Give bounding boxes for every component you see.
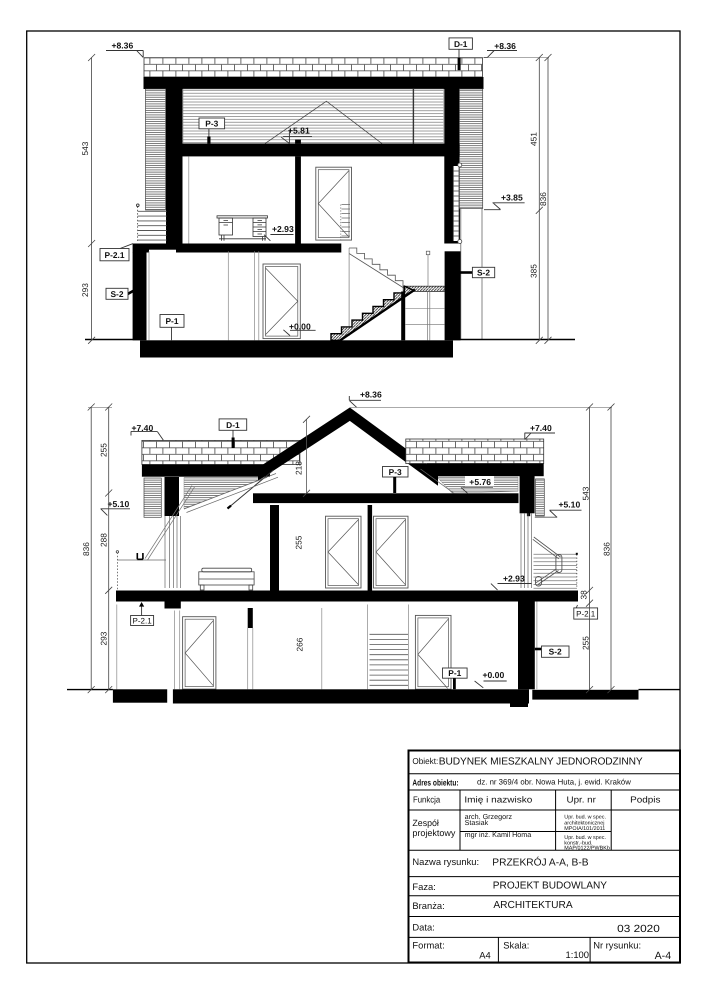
svg-text:03 2020: 03 2020: [617, 924, 660, 935]
svg-text:+5.81: +5.81: [288, 125, 310, 135]
svg-text:+0.00: +0.00: [483, 670, 505, 680]
svg-text:385: 385: [529, 264, 539, 278]
svg-text:P-3: P-3: [205, 119, 218, 129]
svg-text:Branża:: Branża:: [412, 900, 444, 911]
svg-text:dz. nr 369/4 obr. Nowa Huta, j: dz. nr 369/4 obr. Nowa Huta, j. ewid. Kr…: [477, 778, 631, 787]
svg-text:Imię i nazwisko: Imię i nazwisko: [464, 794, 532, 804]
svg-text:255: 255: [99, 443, 109, 457]
svg-text:ARCHITEKTURA: ARCHITEKTURA: [493, 900, 572, 911]
svg-text:Stasiak: Stasiak: [465, 818, 489, 827]
svg-text:A4: A4: [479, 950, 490, 961]
svg-text:38: 38: [579, 590, 589, 600]
svg-text:PROJEKT BUDOWLANY: PROJEKT BUDOWLANY: [493, 880, 607, 891]
svg-text:BUDYNEK MIESZKALNY JEDNORODZIN: BUDYNEK MIESZKALNY JEDNORODZINNY: [439, 757, 643, 768]
svg-text:266: 266: [295, 637, 305, 651]
svg-text:projektowy: projektowy: [412, 828, 456, 838]
svg-text:Obiekt:: Obiekt:: [412, 756, 438, 766]
svg-text:D-1: D-1: [226, 420, 240, 430]
svg-text:Zespół: Zespół: [412, 818, 439, 828]
svg-text:Nazwa rysunku:: Nazwa rysunku:: [412, 856, 479, 867]
svg-text:+5.76: +5.76: [469, 477, 491, 487]
svg-text:P-1: P-1: [448, 668, 461, 678]
svg-text:293: 293: [99, 631, 109, 645]
svg-text:+5.10: +5.10: [108, 499, 130, 509]
svg-text:S-2: S-2: [477, 268, 490, 278]
svg-text:288: 288: [99, 533, 109, 547]
svg-text:Funkcja: Funkcja: [413, 794, 440, 804]
svg-text:+2.93: +2.93: [272, 224, 294, 234]
svg-text:Skala:: Skala:: [503, 939, 529, 950]
svg-text:293: 293: [80, 283, 90, 297]
svg-text:+7.40: +7.40: [530, 423, 552, 433]
svg-text:836: 836: [538, 192, 548, 206]
svg-text:255: 255: [294, 535, 304, 549]
svg-text:451: 451: [529, 132, 539, 146]
svg-text:+2.93: +2.93: [503, 573, 525, 583]
svg-text:Nr rysunku:: Nr rysunku:: [593, 940, 641, 951]
svg-text:Data:: Data:: [412, 921, 434, 932]
svg-text:MAP/0122/PWBKb: MAP/0122/PWBKb: [564, 845, 610, 851]
svg-text:836: 836: [81, 542, 91, 556]
svg-text:836: 836: [602, 542, 612, 556]
svg-text:Format:: Format:: [412, 939, 444, 950]
svg-text:+3.85: +3.85: [501, 192, 523, 202]
svg-text:P-3: P-3: [389, 467, 402, 477]
svg-text:mgr inż. Kamil Homa: mgr inż. Kamil Homa: [465, 830, 532, 839]
svg-text:1:100: 1:100: [566, 949, 589, 960]
svg-text:543: 543: [80, 141, 90, 155]
svg-text:+8.36: +8.36: [112, 41, 134, 51]
svg-text:+5.10: +5.10: [559, 500, 581, 510]
svg-text:P-2.1: P-2.1: [576, 610, 596, 619]
svg-text:Upr. nr: Upr. nr: [567, 794, 596, 804]
svg-text:Podpis: Podpis: [630, 794, 661, 804]
svg-text:255: 255: [581, 636, 591, 650]
svg-text:P-2.1: P-2.1: [133, 616, 153, 625]
svg-text:D-1: D-1: [454, 39, 468, 49]
svg-text:P-1: P-1: [165, 316, 178, 326]
svg-text:Adres obiektu:: Adres obiektu:: [412, 777, 458, 787]
svg-text:P-2.1: P-2.1: [104, 250, 124, 260]
svg-text:218: 218: [294, 461, 304, 475]
svg-text:+8.36: +8.36: [360, 390, 382, 400]
svg-text:+8.36: +8.36: [494, 41, 516, 51]
svg-text:543: 543: [581, 486, 591, 500]
svg-text:PRZEKRÓJ A-A, B-B: PRZEKRÓJ A-A, B-B: [492, 856, 588, 868]
svg-text:MPOIA/101/2011: MPOIA/101/2011: [564, 826, 605, 832]
svg-text:S-2: S-2: [110, 289, 123, 299]
svg-text:A-4: A-4: [655, 950, 672, 962]
svg-text:Faza:: Faza:: [412, 881, 435, 892]
svg-text:S-2: S-2: [549, 647, 562, 657]
